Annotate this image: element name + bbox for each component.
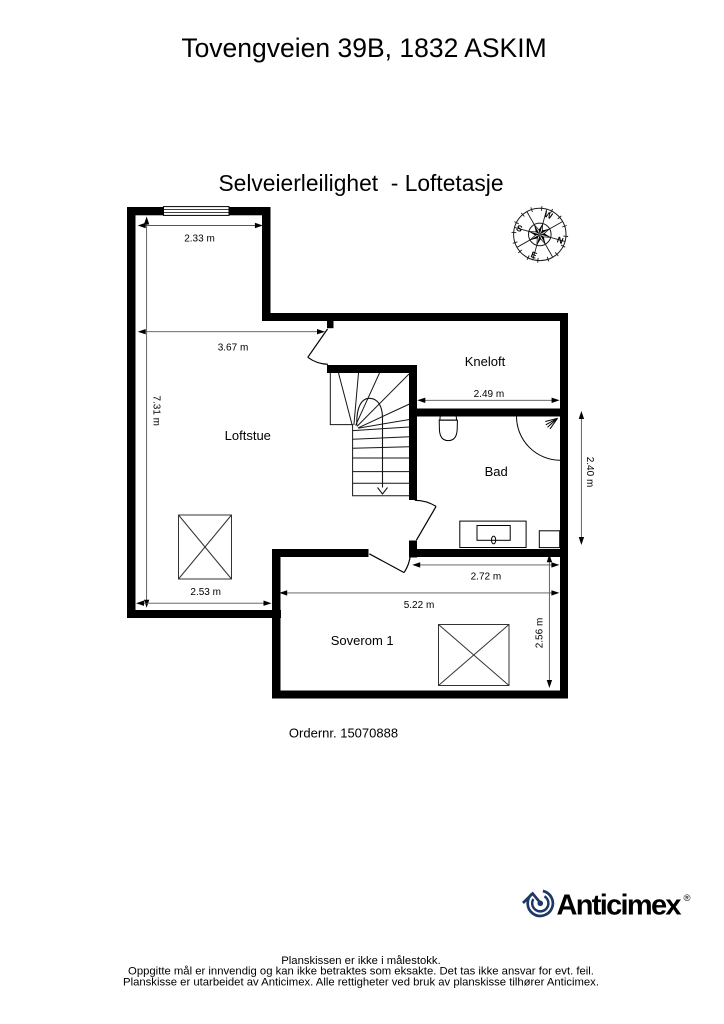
svg-text:2.40 m: 2.40 m bbox=[584, 457, 595, 488]
svg-text:S: S bbox=[515, 223, 524, 234]
svg-text:Soverom 1: Soverom 1 bbox=[331, 633, 394, 648]
svg-text:E: E bbox=[529, 249, 538, 260]
svg-text:W: W bbox=[543, 209, 555, 222]
svg-text:2.72 m: 2.72 m bbox=[471, 572, 502, 583]
svg-text:2.33 m: 2.33 m bbox=[184, 233, 215, 244]
svg-text:Anticimex: Anticimex bbox=[557, 889, 682, 921]
svg-text:2.49 m: 2.49 m bbox=[474, 389, 505, 400]
svg-text:Bad: Bad bbox=[485, 464, 508, 479]
svg-text:Selveierleilighet - Loftetasj: Selveierleilighet - Loftetasje bbox=[218, 170, 503, 196]
svg-text:Planskisse er utarbeidet av An: Planskisse er utarbeidet av Anticimex. A… bbox=[123, 976, 599, 988]
svg-text:®: ® bbox=[684, 893, 691, 904]
svg-text:Tovengveien 39B, 1832 ASKIM: Tovengveien 39B, 1832 ASKIM bbox=[181, 33, 546, 63]
svg-text:5.22 m: 5.22 m bbox=[404, 600, 435, 611]
svg-text:7.31 m: 7.31 m bbox=[150, 395, 161, 426]
svg-text:Kneloft: Kneloft bbox=[465, 354, 506, 369]
svg-text:2.53 m: 2.53 m bbox=[190, 587, 221, 598]
svg-text:Ordernr. 15070888: Ordernr. 15070888 bbox=[289, 726, 398, 741]
svg-text:Loftstue: Loftstue bbox=[225, 428, 271, 443]
svg-text:3.67 m: 3.67 m bbox=[218, 343, 249, 354]
svg-text:2.56 m: 2.56 m bbox=[535, 618, 546, 649]
